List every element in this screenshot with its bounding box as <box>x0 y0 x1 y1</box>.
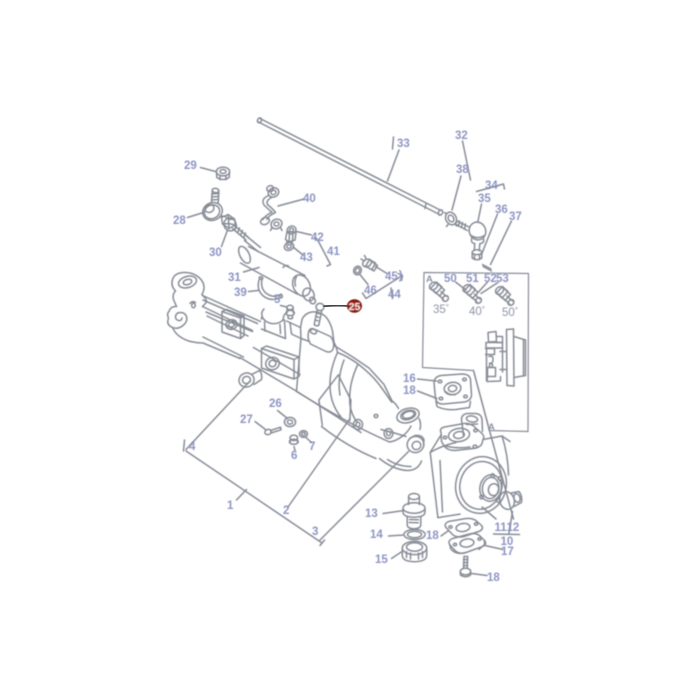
svg-text:43: 43 <box>300 252 313 264</box>
svg-text:34: 34 <box>485 180 498 192</box>
svg-text:2: 2 <box>283 505 289 517</box>
svg-text:35°: 35° <box>433 303 449 316</box>
svg-text:26: 26 <box>269 398 282 410</box>
svg-text:30: 30 <box>209 247 222 259</box>
svg-text:6: 6 <box>291 450 297 462</box>
svg-text:45): 45) <box>385 270 403 283</box>
svg-text:35: 35 <box>478 193 491 205</box>
svg-text:29: 29 <box>184 160 197 172</box>
svg-text:36: 36 <box>495 204 508 216</box>
svg-text:50°: 50° <box>502 306 518 319</box>
svg-text:37: 37 <box>509 211 522 223</box>
svg-text:11: 11 <box>495 522 508 534</box>
svg-text:46: 46 <box>364 285 377 297</box>
svg-text:33: 33 <box>397 138 410 150</box>
svg-text:40°: 40° <box>469 305 485 318</box>
svg-text:A: A <box>426 274 433 285</box>
svg-text:51: 51 <box>466 273 479 285</box>
svg-text:18: 18 <box>403 385 416 397</box>
svg-text:31: 31 <box>228 272 241 284</box>
svg-text:39: 39 <box>234 287 247 299</box>
svg-text:14: 14 <box>370 529 383 541</box>
svg-text:53: 53 <box>496 273 509 285</box>
svg-text:A: A <box>488 422 495 433</box>
svg-text:12: 12 <box>507 522 520 534</box>
svg-text:25: 25 <box>349 301 361 313</box>
svg-text:4: 4 <box>189 441 196 453</box>
svg-text:13: 13 <box>365 508 378 520</box>
svg-text:16: 16 <box>403 373 416 385</box>
svg-text:44: 44 <box>388 289 401 301</box>
svg-text:15: 15 <box>375 554 388 566</box>
svg-text:18: 18 <box>426 530 439 542</box>
svg-text:28: 28 <box>173 215 186 227</box>
svg-text:3: 3 <box>312 526 318 538</box>
svg-text:1: 1 <box>227 500 234 512</box>
svg-text:50: 50 <box>444 273 457 285</box>
svg-text:17: 17 <box>501 546 514 558</box>
svg-text:38: 38 <box>456 164 469 176</box>
svg-text:40: 40 <box>303 193 316 205</box>
svg-text:18: 18 <box>487 572 500 584</box>
svg-text:41: 41 <box>327 246 340 258</box>
svg-text:32: 32 <box>455 130 468 142</box>
svg-text:42: 42 <box>311 232 324 244</box>
svg-text:27: 27 <box>240 414 253 426</box>
svg-text:5: 5 <box>274 294 281 306</box>
svg-text:7: 7 <box>309 441 315 453</box>
svg-text:52: 52 <box>484 273 497 285</box>
